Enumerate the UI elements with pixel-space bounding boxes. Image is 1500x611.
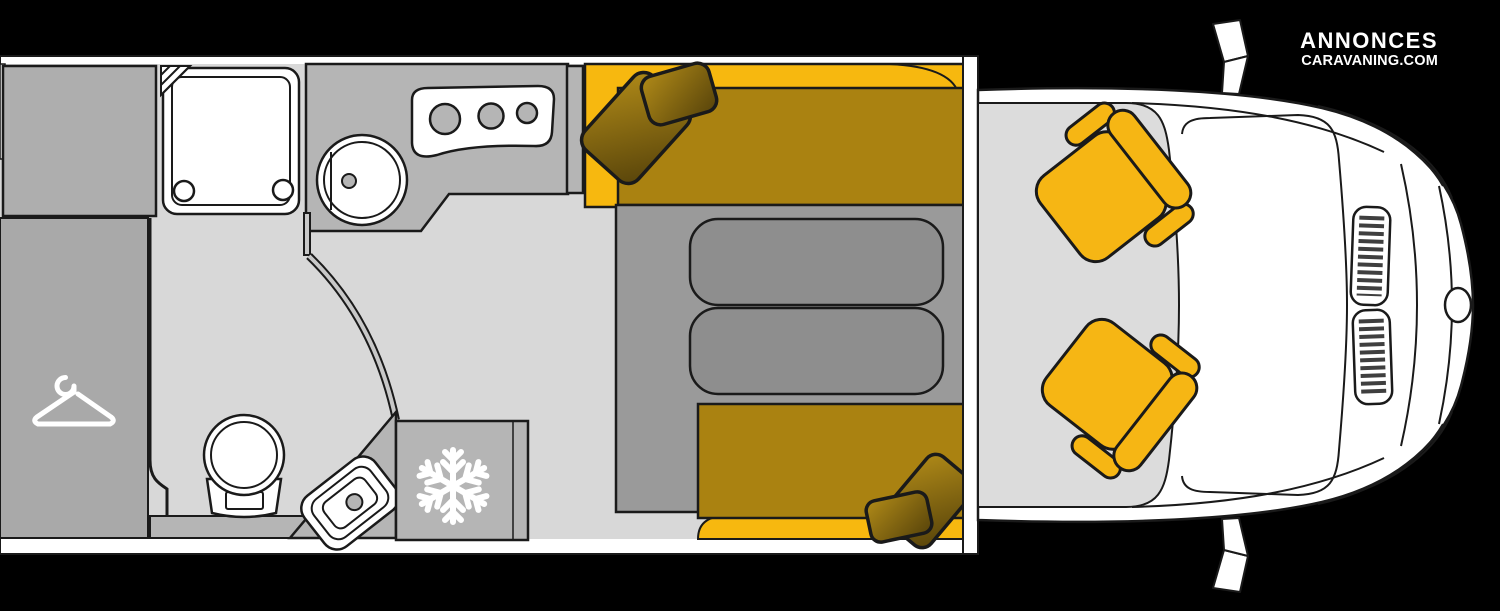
wall-cab-partition <box>963 56 978 554</box>
shower-drain <box>174 181 194 201</box>
brand-line2: CARAVANING.COM <box>1300 54 1438 69</box>
hob-burner <box>517 103 537 123</box>
shower-drain <box>273 180 293 200</box>
refrigerator <box>396 421 528 540</box>
kitchen-end-wall <box>567 66 583 193</box>
motorhome-floorplan: ANNONCES CARAVANING.COM <box>0 0 1500 611</box>
radiator-grille-vent <box>1350 206 1390 305</box>
brand-line1: ANNONCES <box>1300 30 1438 52</box>
shower-tray <box>161 66 299 214</box>
floorplan-canvas <box>0 0 1500 611</box>
hob-burner <box>430 104 460 134</box>
wardrobe <box>0 218 148 538</box>
dinette-table-half <box>690 308 943 394</box>
overhead-cabinet <box>3 66 156 216</box>
fuel-cap <box>1445 288 1471 322</box>
brand-logo: ANNONCES CARAVANING.COM <box>1300 30 1438 69</box>
toilet <box>204 415 284 517</box>
radiator-grille-vent <box>1352 309 1392 404</box>
hob <box>412 86 554 157</box>
kitchen-sink <box>317 135 407 225</box>
hob-burner <box>479 104 504 129</box>
dinette-table-half <box>690 219 943 305</box>
